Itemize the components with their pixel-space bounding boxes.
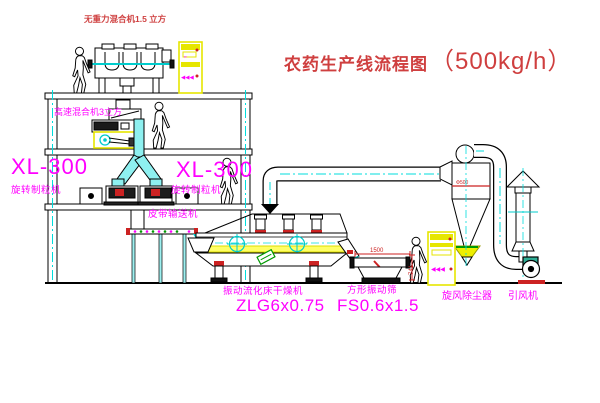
control-cabinet-top: ▪▪ ◀◀◀ bbox=[179, 42, 202, 93]
granulator-left bbox=[80, 186, 140, 205]
granulator-left-model: XL-300 bbox=[11, 155, 88, 178]
person-icon bbox=[73, 47, 90, 93]
title-text: 农药生产线流程图 bbox=[284, 56, 428, 74]
svg-text:◀◀◀: ◀◀◀ bbox=[431, 267, 445, 273]
gravity-mixer-label: 无重力混合机1.5 立方 bbox=[84, 15, 166, 24]
sieve-label: 方形振动筛 bbox=[347, 286, 397, 296]
fan-label: 引风机 bbox=[508, 292, 538, 303]
exhaust-duct bbox=[261, 174, 441, 214]
granulator-right-model: XL-300 bbox=[176, 158, 253, 181]
sieve-dim-width: 1500 bbox=[370, 248, 384, 254]
cyclone-label: 旋风除尘器 bbox=[442, 292, 492, 303]
dryer-model: ZLG6x0.75 bbox=[236, 297, 325, 315]
granulator-right-name: 旋转制粒机 bbox=[171, 186, 221, 196]
title-capacity: （500kg/h） bbox=[430, 49, 572, 74]
person-icon bbox=[152, 102, 169, 148]
page-title: 农药生产线流程图 （500kg/h） bbox=[284, 49, 572, 74]
gravity-mixer bbox=[88, 44, 174, 93]
svg-text:◀◀◀: ◀◀◀ bbox=[181, 75, 194, 81]
sieve-model: FS0.6x1.5 bbox=[337, 297, 419, 315]
cyclone-marking: Φ500 bbox=[456, 180, 469, 186]
square-sieve: 1500 741 bbox=[350, 248, 415, 283]
fluidbed-dryer bbox=[188, 214, 359, 282]
highspeed-mixer-label: 高速混合机3立方 bbox=[54, 108, 122, 117]
granulator-left-name: 旋转制粒机 bbox=[11, 186, 61, 196]
belt-conveyor-label: 皮带输送机 bbox=[148, 210, 198, 220]
control-cabinet-cyclone: ◀◀◀ bbox=[428, 232, 455, 285]
flow-diagram: ▪▪ ◀◀◀ bbox=[0, 0, 600, 403]
belt-conveyor bbox=[126, 210, 201, 283]
sieve-dim-height: 741 bbox=[409, 264, 415, 275]
